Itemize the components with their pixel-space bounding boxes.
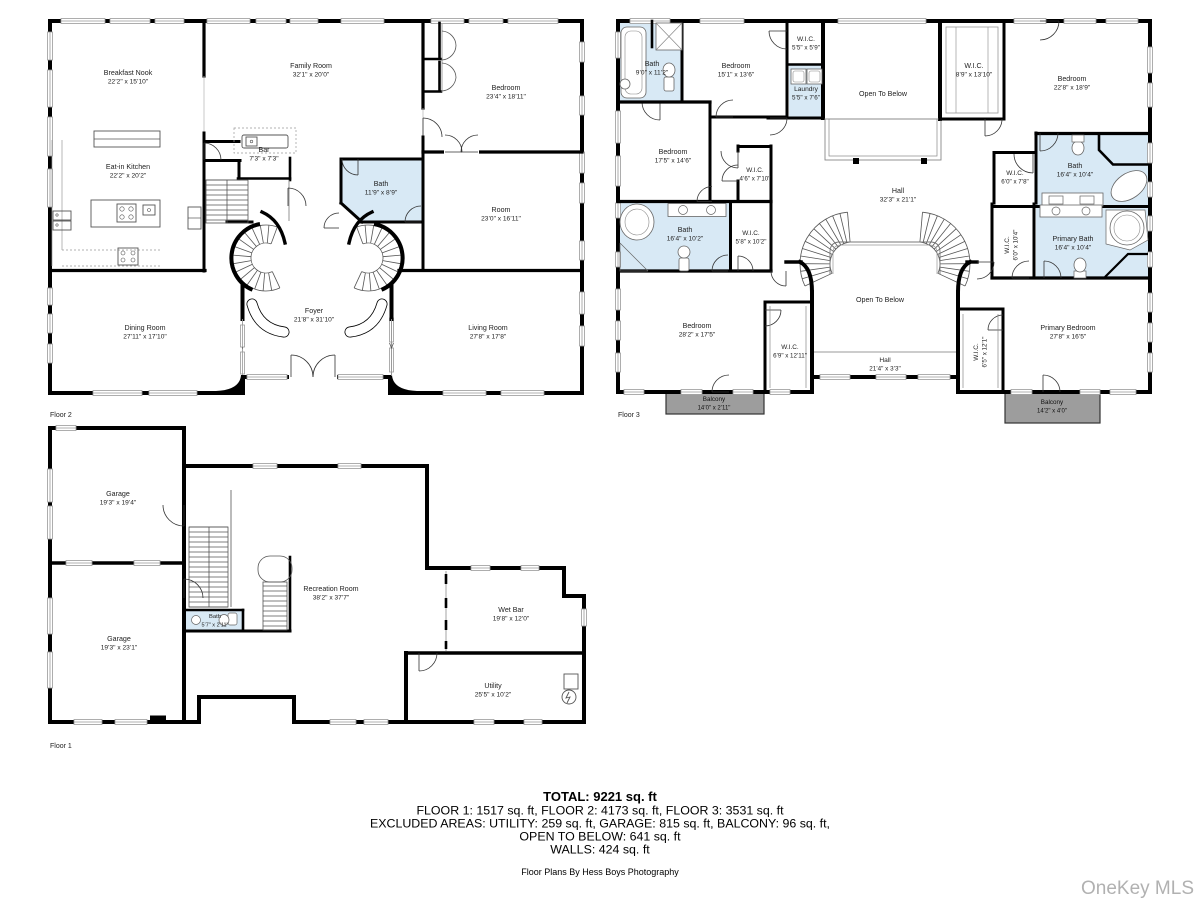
svg-text:15’1" x 13’6": 15’1" x 13’6" xyxy=(718,72,755,79)
svg-text:6’9" x 12’11": 6’9" x 12’11" xyxy=(773,353,807,360)
svg-text:14’0" x 2’11": 14’0" x 2’11" xyxy=(698,406,731,412)
svg-text:Eat-in Kitchen: Eat-in Kitchen xyxy=(106,163,150,171)
svg-text:28’2" x 17’5": 28’2" x 17’5" xyxy=(679,332,716,339)
svg-text:27’11" x 17’10": 27’11" x 17’10" xyxy=(123,334,167,341)
svg-text:23’4" x 18’11": 23’4" x 18’11" xyxy=(486,94,526,101)
svg-text:Bath: Bath xyxy=(209,614,221,620)
svg-text:22’8" x 18’9": 22’8" x 18’9" xyxy=(1054,85,1091,92)
svg-text:4’6" x 7’10": 4’6" x 7’10" xyxy=(740,176,771,183)
svg-text:W.I.C.: W.I.C. xyxy=(746,167,764,174)
svg-text:Garage: Garage xyxy=(107,635,131,643)
svg-text:Balcony: Balcony xyxy=(1041,399,1064,406)
svg-text:Bath: Bath xyxy=(1068,162,1083,170)
svg-text:Bedroom: Bedroom xyxy=(492,84,521,92)
svg-text:8’9" x 13’10": 8’9" x 13’10" xyxy=(956,72,993,79)
svg-text:11’9" x 8’9": 11’9" x 8’9" xyxy=(365,190,398,197)
svg-text:Wet Bar: Wet Bar xyxy=(498,606,524,614)
svg-text:32’3" x 21’1": 32’3" x 21’1" xyxy=(880,197,917,204)
svg-text:Breakfast Nook: Breakfast Nook xyxy=(104,69,153,77)
svg-text:23’0" x 16’11": 23’0" x 16’11" xyxy=(481,216,521,223)
svg-text:OPEN TO BELOW: 641 sq. ft: OPEN TO BELOW: 641 sq. ft xyxy=(519,830,681,844)
svg-text:Living Room: Living Room xyxy=(468,324,508,332)
svg-text:14’2" x 4’0": 14’2" x 4’0" xyxy=(1037,409,1067,415)
svg-text:22’2" x 20’2": 22’2" x 20’2" xyxy=(110,173,147,180)
svg-text:Bedroom: Bedroom xyxy=(722,62,751,70)
svg-text:Floor 3: Floor 3 xyxy=(618,412,640,419)
svg-text:6’0" x 7’8": 6’0" x 7’8" xyxy=(1001,179,1028,186)
svg-text:7’3" x 7’3": 7’3" x 7’3" xyxy=(249,156,279,163)
svg-text:32’1" x 20’0": 32’1" x 20’0" xyxy=(293,72,330,79)
svg-text:W.I.C.: W.I.C. xyxy=(964,62,983,70)
svg-text:Open To Below: Open To Below xyxy=(856,296,905,304)
svg-text:Utility: Utility xyxy=(484,682,502,690)
svg-text:W.I.C.: W.I.C. xyxy=(1004,236,1011,254)
svg-text:5’7" x 2’11": 5’7" x 2’11" xyxy=(201,623,228,629)
svg-text:Hall: Hall xyxy=(892,187,905,195)
svg-text:6’5" x 12’1": 6’5" x 12’1" xyxy=(982,337,989,368)
svg-text:Bedroom: Bedroom xyxy=(683,322,712,330)
svg-text:Garage: Garage xyxy=(106,490,130,498)
svg-text:16’4" x 10’4": 16’4" x 10’4" xyxy=(1055,245,1092,252)
svg-text:W.I.C.: W.I.C. xyxy=(973,343,980,361)
svg-text:Floor 2: Floor 2 xyxy=(50,412,72,419)
svg-text:Bedroom: Bedroom xyxy=(1058,75,1087,83)
svg-text:5’8" x 10’2": 5’8" x 10’2" xyxy=(736,239,767,246)
svg-text:Dining Room: Dining Room xyxy=(124,324,165,332)
svg-text:21’4" x 3’3": 21’4" x 3’3" xyxy=(869,366,900,373)
svg-text:16’4" x 10’2": 16’4" x 10’2" xyxy=(667,236,704,243)
svg-text:Hall: Hall xyxy=(879,357,891,364)
svg-text:22’2" x 15’10": 22’2" x 15’10" xyxy=(108,79,149,86)
svg-text:Primary Bath: Primary Bath xyxy=(1053,235,1094,243)
svg-text:5’5" x 5’9": 5’5" x 5’9" xyxy=(792,45,820,52)
svg-text:Bar: Bar xyxy=(258,146,270,154)
svg-text:Floor 1: Floor 1 xyxy=(50,743,72,750)
svg-text:Bath: Bath xyxy=(678,226,693,234)
svg-text:25’5" x 10’2": 25’5" x 10’2" xyxy=(475,692,512,699)
svg-text:Bath: Bath xyxy=(374,180,389,188)
svg-text:W.I.C.: W.I.C. xyxy=(797,36,815,43)
svg-text:19’8" x 12’0": 19’8" x 12’0" xyxy=(493,616,530,623)
svg-text:Primary Bedroom: Primary Bedroom xyxy=(1040,324,1095,332)
svg-text:16’4" x 10’4": 16’4" x 10’4" xyxy=(1057,172,1094,179)
svg-text:21’8" x 31’10": 21’8" x 31’10" xyxy=(294,317,335,324)
svg-text:27’8" x 16’5": 27’8" x 16’5" xyxy=(1050,334,1087,341)
svg-text:6’0" x 10’4": 6’0" x 10’4" xyxy=(1013,230,1020,261)
svg-text:Family Room: Family Room xyxy=(290,62,332,70)
svg-text:OneKey MLS: OneKey MLS xyxy=(1081,878,1194,899)
svg-text:Room: Room xyxy=(492,206,511,214)
svg-text:EXCLUDED AREAS: UTILITY: 259 s: EXCLUDED AREAS: UTILITY: 259 sq. ft, GAR… xyxy=(370,817,830,831)
svg-text:TOTAL: 9221 sq. ft: TOTAL: 9221 sq. ft xyxy=(543,789,657,804)
svg-text:38’2" x 37’7": 38’2" x 37’7" xyxy=(313,595,350,602)
svg-text:Foyer: Foyer xyxy=(305,307,324,315)
svg-text:9’0" x 11’2": 9’0" x 11’2" xyxy=(636,70,669,77)
svg-text:Open To Below: Open To Below xyxy=(859,90,908,98)
svg-text:W.I.C.: W.I.C. xyxy=(781,344,799,351)
svg-text:Laundry: Laundry xyxy=(794,86,819,93)
svg-text:Balcony: Balcony xyxy=(703,396,726,403)
svg-text:19’3" x 23’1": 19’3" x 23’1" xyxy=(101,645,138,652)
svg-text:WALLS: 424 sq. ft: WALLS: 424 sq. ft xyxy=(550,843,650,857)
svg-text:19’3" x 19’4": 19’3" x 19’4" xyxy=(100,500,137,507)
svg-text:Bath: Bath xyxy=(645,60,660,68)
svg-text:W.I.C.: W.I.C. xyxy=(1006,170,1024,177)
svg-text:27’8" x 17’8": 27’8" x 17’8" xyxy=(470,334,507,341)
svg-text:Recreation Room: Recreation Room xyxy=(303,585,358,593)
svg-text:17’5" x 14’6": 17’5" x 14’6" xyxy=(655,158,692,165)
svg-text:Bedroom: Bedroom xyxy=(659,148,688,156)
svg-text:Floor Plans By Hess Boys Photo: Floor Plans By Hess Boys Photography xyxy=(521,867,679,877)
svg-text:FLOOR 1: 1517 sq. ft, FLOOR 2:: FLOOR 1: 1517 sq. ft, FLOOR 2: 4173 sq. … xyxy=(416,804,784,818)
svg-text:5’5" x 7’6": 5’5" x 7’6" xyxy=(792,95,820,102)
svg-text:W.I.C.: W.I.C. xyxy=(742,230,760,237)
